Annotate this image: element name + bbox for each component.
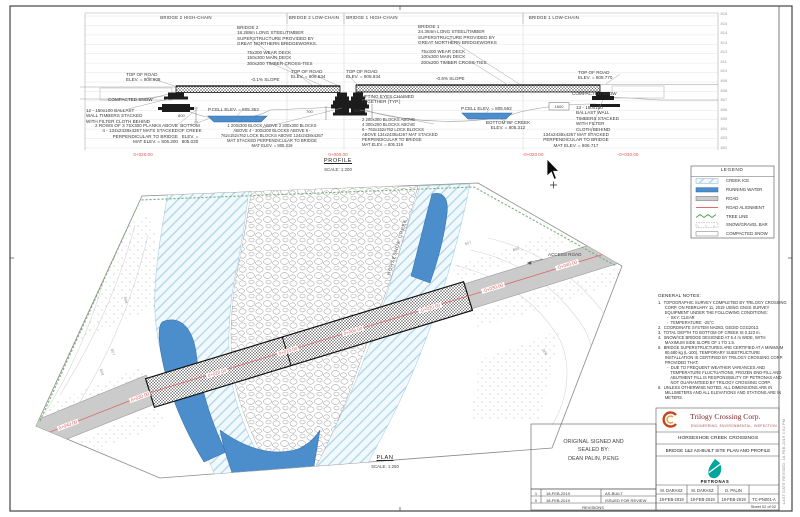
name-drawn: M. DARASZ xyxy=(660,488,682,493)
elev-tick: 810 xyxy=(721,68,728,73)
note-slope-bridge2: -0.1% SLOPE xyxy=(251,77,280,82)
elev-tick: 804 xyxy=(721,126,728,131)
rev-date-1: 18-FEB-2019 xyxy=(546,491,570,496)
project-title: HORSESHOE CREEK CROSSINGS xyxy=(678,436,758,441)
client-name: PETRONAS xyxy=(701,479,730,484)
petronas-logo xyxy=(708,459,721,478)
profile-bridge-decks xyxy=(176,85,600,93)
sheet-number: Sheet 02 of 02 xyxy=(716,504,776,509)
note-bridge2: BRIDGE 2 18.288m LONG STEEL/TIMBER SUPER… xyxy=(237,25,317,47)
name-checked: M. DARASZ xyxy=(691,488,713,493)
profile-station-1: 0+020.00 xyxy=(133,152,152,157)
note-deck2: 75x300 WEAR DECK 150x300 MAIN DECK 300x2… xyxy=(247,50,313,66)
profile-header-bridge1-low: BRIDGE 1 LOW-CHAIN xyxy=(529,15,579,20)
trilogy-logo xyxy=(664,413,676,427)
last-revised-edge-note: LAST DATE REVISED: 18-FEB-2019 3:52 PM xyxy=(782,419,786,504)
date-approved: 18-FEB-2019 xyxy=(721,497,745,502)
elev-tick: 813 xyxy=(721,40,728,45)
profile-header-bridge2-low: BRIDGE 2 LOW-CHAIN xyxy=(289,15,339,20)
profile-station-4: -0+030.00 xyxy=(618,152,639,157)
note-top-of-road-634a: TOP OF ROAD ELEV. = 808.634 xyxy=(291,69,325,80)
general-notes-heading: GENERAL NOTES: xyxy=(658,293,701,298)
note-compacted-snow-right: COMPACTED SNOW xyxy=(572,91,617,96)
dim-900: 900 xyxy=(354,108,361,113)
elev-tick: 805 xyxy=(721,116,728,121)
date-drawn: 18-FEB-2019 xyxy=(659,497,683,502)
note-bridge1: BRIDGE 1 24.384m LONG STEEL/TIMBER SUPER… xyxy=(418,24,497,46)
elev-tick: 808 xyxy=(721,88,728,93)
sheet-title: BRIDGE 1&2 AS-BUILT SITE PLAN AND PROFIL… xyxy=(666,448,771,453)
date-checked: 18-FEB-2019 xyxy=(690,497,714,502)
elev-tick: 807 xyxy=(721,97,728,102)
company-name: Trilogy Crossing Corp. xyxy=(690,412,760,421)
drawing-sheet: BRIDGE 2 HIGH-CHAIN BRIDGE 2 LOW-CHAIN B… xyxy=(0,0,800,517)
legend-item-creek-ice: CREEK ICE xyxy=(726,178,749,183)
company-tagline: ENGINEERING, ENVIRONMENTAL, INSPECTION xyxy=(691,424,777,428)
profile-station-2: 0+000.00 xyxy=(328,152,347,157)
elev-tick: 809 xyxy=(721,78,728,83)
note-ballast-right: 13 - 150x100 BALLAST WALL TIMBERS STACKE… xyxy=(576,105,619,132)
note-top-of-road-608: TOP OF ROAD ELEV. = 808.608 xyxy=(126,72,160,83)
note-lifting-eyes: LIFTING EYES CHAINED TOGETHER (TYP.) xyxy=(361,94,414,105)
elev-tick: 811 xyxy=(721,59,728,64)
note-slope-bridge1: -0.6% SLOPE xyxy=(436,76,465,81)
elev-tick: 814 xyxy=(721,30,728,35)
elev-tick: 816 xyxy=(721,11,728,16)
legend-item-tree-line: TREE LINE xyxy=(726,214,748,219)
elev-tick: 806 xyxy=(721,107,728,112)
note-pcell-bridge2: P.CELL ELEV. = 805.353 xyxy=(208,107,259,112)
profile-station-3: -0+020.00 xyxy=(523,152,544,157)
rev-desc-1: AS-BUILT xyxy=(605,491,623,496)
elev-tick: 803 xyxy=(721,135,728,140)
general-notes-body: 1. TOPOGRAPHIC SURVEY COMPLETED BY TRILO… xyxy=(658,300,784,400)
note-top-of-road-634b: TOP OF ROAD ELEV. = 808.634 xyxy=(346,69,380,80)
dim-1600: 1600 xyxy=(551,104,567,109)
name-approved: D. PALIN xyxy=(725,488,742,493)
contour-label: 806 xyxy=(123,296,129,304)
note-top-of-road-770: TOP OF ROAD ELEV. = 808.770 xyxy=(578,70,612,81)
legend-item-road: ROAD xyxy=(726,196,738,201)
profile-scale: SCALE: 1:200 xyxy=(324,167,352,172)
elev-tick: 815 xyxy=(721,21,728,26)
legend-item-running-water: RUNNING WATER xyxy=(726,187,762,192)
plan-scale: SCALE: 1:250 xyxy=(371,464,399,469)
dim-800: 800 xyxy=(178,113,185,118)
rev-date-0: 18-FEB-2019 xyxy=(546,498,570,503)
signature-note: ORIGINAL SIGNED AND SEALED BY: DEAN PALI… xyxy=(531,438,656,463)
note-mat-right: 134x2438x4267 MAT STACKED PERPENDICULAR … xyxy=(536,132,616,148)
note-ballast-left: 12 - 150x100 BALLAST WALL TIMBERS STACKE… xyxy=(86,108,150,124)
legend-item-compacted-snow: COMPACTED SNOW xyxy=(726,231,768,236)
note-creek-bottom-bridge2: BOTTOM OF CREEK ELEV. = 805.030 xyxy=(177,123,203,145)
rev-desc-0: ISSUED FOR REVIEW xyxy=(605,498,646,503)
note-planks-mats: 2 ROWS OF 3 75X300 PLANKS ABOVE 4 - 134x… xyxy=(86,123,178,145)
note-creek-bottom-bridge1: BOTTOM OF CREEK ELEV. = 805.312 xyxy=(484,120,532,131)
profile-header-bridge1-high: BRIDGE 1 HIGH-CHAIN xyxy=(346,15,398,20)
legend-item-snow-gravel-bar: SNOW/GRAVEL BAR xyxy=(726,222,768,227)
note-compacted-snow-left: COMPACTED SNOW xyxy=(108,97,153,102)
rev-number-1: 1 xyxy=(531,491,541,496)
note-deck1: 75x300 WEAR DECK 100x300 MAIN DECK 200x2… xyxy=(421,49,487,65)
document-number: TC-PN001-A xyxy=(752,497,775,502)
profile-elevation-axis: 816 815 814 813 812 811 810 809 808 807 … xyxy=(721,11,728,150)
revisions-footer: REVISIONS xyxy=(582,505,604,510)
legend-title: LEGEND xyxy=(721,168,744,173)
profile-header-bridge2-high: BRIDGE 2 HIGH-CHAIN xyxy=(160,15,212,20)
elev-tick: 812 xyxy=(721,49,728,54)
elev-tick: 802 xyxy=(721,145,728,150)
plan-title: PLAN xyxy=(376,455,393,461)
legend-item-road-alignment: ROAD ALIGNMENT xyxy=(726,205,764,210)
note-pcell-bridge1: P.CELL ELEV. = 805.562 xyxy=(461,106,512,111)
profile-title: PROFILE xyxy=(324,158,352,164)
note-blocks-bridge2: 1 200x300 BLOCK ABOVE 2 200x300 BLOCKS A… xyxy=(214,124,330,149)
rev-number-0: 0 xyxy=(531,498,541,503)
mouse-cursor xyxy=(543,158,565,192)
dim-700: 700 xyxy=(306,109,313,114)
note-blocks-bridge1: 2 200x300 BLOCKS ABOVE 4 300x200 BLOCKS … xyxy=(362,118,438,148)
access-road-label: ACCESS ROAD xyxy=(548,252,581,257)
